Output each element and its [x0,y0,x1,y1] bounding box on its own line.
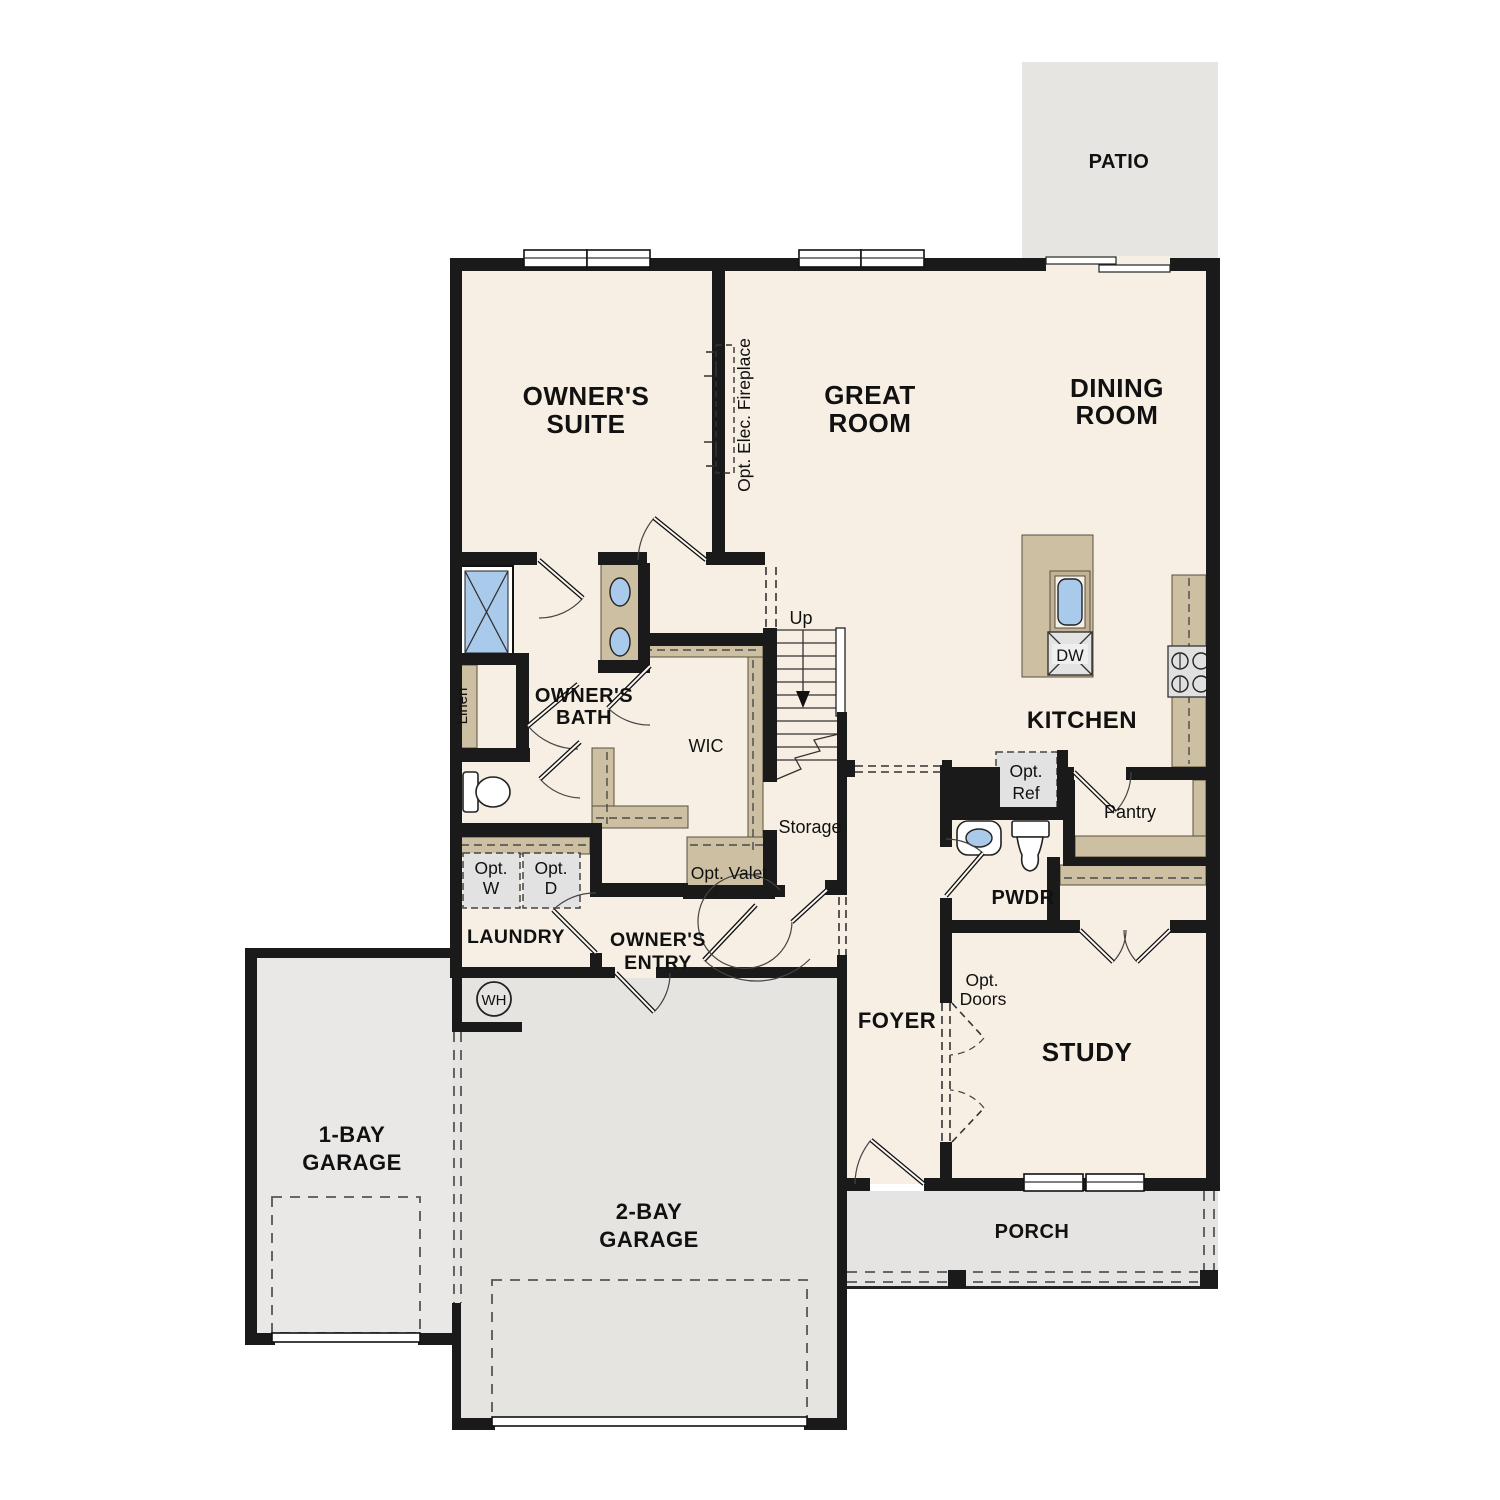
wic-shelf-right [748,657,763,857]
room-label-storage: Storage [778,817,841,837]
window [861,250,924,267]
wall-segment [452,1022,522,1032]
wall-segment [590,883,688,897]
room-label-great-room-1: GREAT [824,380,916,410]
wall-segment [924,1178,952,1191]
wall-segment [845,760,855,777]
garage-door-2bay [492,1417,807,1426]
floor-plan-svg: DW WH [0,0,1500,1500]
wall-segment [683,885,775,899]
wall-segment [940,898,952,922]
room-label-dining-room-1: DINING [1070,373,1164,403]
water-heater-label: WH [482,992,507,1009]
room-label-dining-room-2: ROOM [1076,400,1159,430]
wall-segment [638,633,765,646]
room-label-linen: Linen [454,688,471,725]
wall-segment [245,948,257,1345]
wall-segment [1143,1178,1220,1191]
wall-segment [804,1418,845,1430]
room-label-owners-bath-2: BATH [556,707,612,729]
wall-segment [825,880,847,895]
wall-segment [516,653,529,762]
study-closet-shelf [1060,865,1206,885]
room-label-study: STUDY [1042,1037,1133,1067]
window [799,250,861,267]
wall-segment [1063,780,1075,859]
wall-segment [450,823,592,837]
sliding-door-patio [1046,256,1170,273]
room-label-owners-bath-1: OWNER'S [535,685,633,707]
feature-label-opt-doors-1: Opt. [965,970,998,990]
island-sink [1050,571,1090,633]
wall-segment [1063,857,1206,866]
porch-edge [847,1286,1218,1289]
feature-label-opt-d-1: Opt. [534,858,567,878]
room-label-garage2-2: GARAGE [599,1227,699,1252]
room-label-owners-suite-2: SUITE [546,409,625,439]
wall-segment [452,948,462,1032]
room-label-owners-suite-1: OWNER'S [523,381,650,411]
wall-segment [450,552,537,565]
porch-post [1200,1270,1218,1288]
wall-segment [245,1333,275,1345]
feature-label-up: Up [789,608,812,628]
room-label-owners-entry-1: OWNER'S [610,929,706,951]
window [1024,1174,1083,1191]
wall-segment [940,920,1062,933]
wall-segment [712,266,725,565]
room-label-laundry: LAUNDRY [467,926,565,948]
floor-plan-page: DW WH [0,0,1500,1500]
room-label-kitchen: KITCHEN [1027,707,1137,734]
wall-segment [450,748,530,762]
wall-segment [952,1178,1026,1191]
feature-label-opt-ref-2: Ref [1012,783,1039,803]
wall-segment [1206,258,1220,1191]
vanity-sink [610,578,630,606]
feature-label-opt-ref-1: Opt. [1009,761,1042,781]
stair-railing [836,628,845,716]
room-label-garage1-1: 1-BAY [319,1122,386,1147]
wall-segment [706,552,765,565]
dishwasher: DW [1048,632,1092,675]
feature-label-opt-d-2: D [545,878,558,898]
window [587,250,650,267]
room-label-pantry: Pantry [1104,802,1156,822]
window [1086,1174,1144,1191]
feature-label-opt-w-1: Opt. [474,858,507,878]
wall-segment [763,885,785,897]
feature-label-fireplace: Opt. Elec. Fireplace [734,338,754,492]
dishwasher-label: DW [1056,647,1084,665]
feature-label-opt-doors-2: Doors [960,989,1007,1009]
feature-label-opt-w-2: W [483,878,500,898]
shower [460,566,513,658]
wall-segment [450,653,520,665]
wall-segment [837,955,847,1430]
wall-segment [450,258,462,978]
wall-segment [940,933,952,1003]
wall-segment [452,1418,495,1430]
wall-segment [1126,767,1206,780]
pantry-shelf-bottom [1075,836,1206,857]
room-label-foyer: FOYER [858,1008,936,1033]
room-label-patio: PATIO [1089,151,1150,173]
wall-segment [452,1303,461,1430]
window [524,250,587,267]
wall-segment [763,628,777,782]
wall-segment [1170,920,1206,933]
wall-segment [845,1178,870,1191]
wall-segment [455,967,615,978]
room-label-garage2-1: 2-BAY [616,1199,683,1224]
wall-segment [638,563,650,663]
range [1168,646,1209,697]
wall-segment [1060,920,1080,933]
vanity-sink [610,628,630,656]
garage-door-1bay [272,1333,420,1342]
room-label-porch: PORCH [995,1221,1070,1243]
room-label-wic: WIC [689,736,724,756]
wall-segment [940,765,952,847]
porch-post [948,1270,966,1288]
room-label-owners-entry-2: ENTRY [624,952,692,974]
room-label-great-room-2: ROOM [829,408,912,438]
wall-segment [245,948,462,958]
room-label-pwdr: PWDR [991,887,1054,909]
wall-segment [837,712,847,882]
feature-label-opt-valet: Opt. Valet [691,863,768,883]
room-label-garage1-2: GARAGE [302,1150,402,1175]
